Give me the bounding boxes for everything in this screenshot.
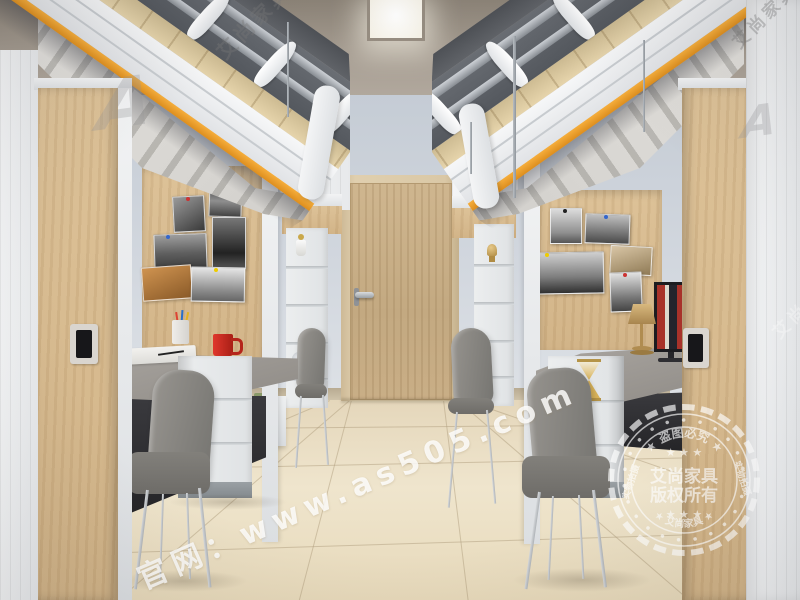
seal-side-left-text: 实物拍摄 [619,462,642,501]
seal-center-line2: 版权所有 [650,485,718,506]
railing-post [347,133,397,185]
curtain-rod [470,122,472,174]
curtain-rod [513,36,516,198]
dorm-room-render: 艾尚家具 A 艾尚家具 A 艾尚家具 官网：www.as505.com ★ 盗图… [0,0,800,600]
seal-center-line1: 艾尚家具 [650,466,718,487]
brand-logo-watermark: A [95,65,155,142]
railing-post [280,180,330,232]
seal-stars-bottom: ★ ★ ★ [666,508,703,521]
seal-stars-top: ★ ★ ★ [666,446,703,459]
railing-post [213,227,263,279]
curtain-rod [643,40,645,132]
curtain-rod [287,22,289,117]
brand-logo-watermark: A [740,98,778,146]
right-wardrobe-handle-recess [688,334,703,362]
copyright-seal: ★ 盗图必究 ★ ★ 艾尚家具 ★ 实物拍摄 实物拍摄 ★ ★ ★ 艾尚家具 版… [604,400,764,560]
